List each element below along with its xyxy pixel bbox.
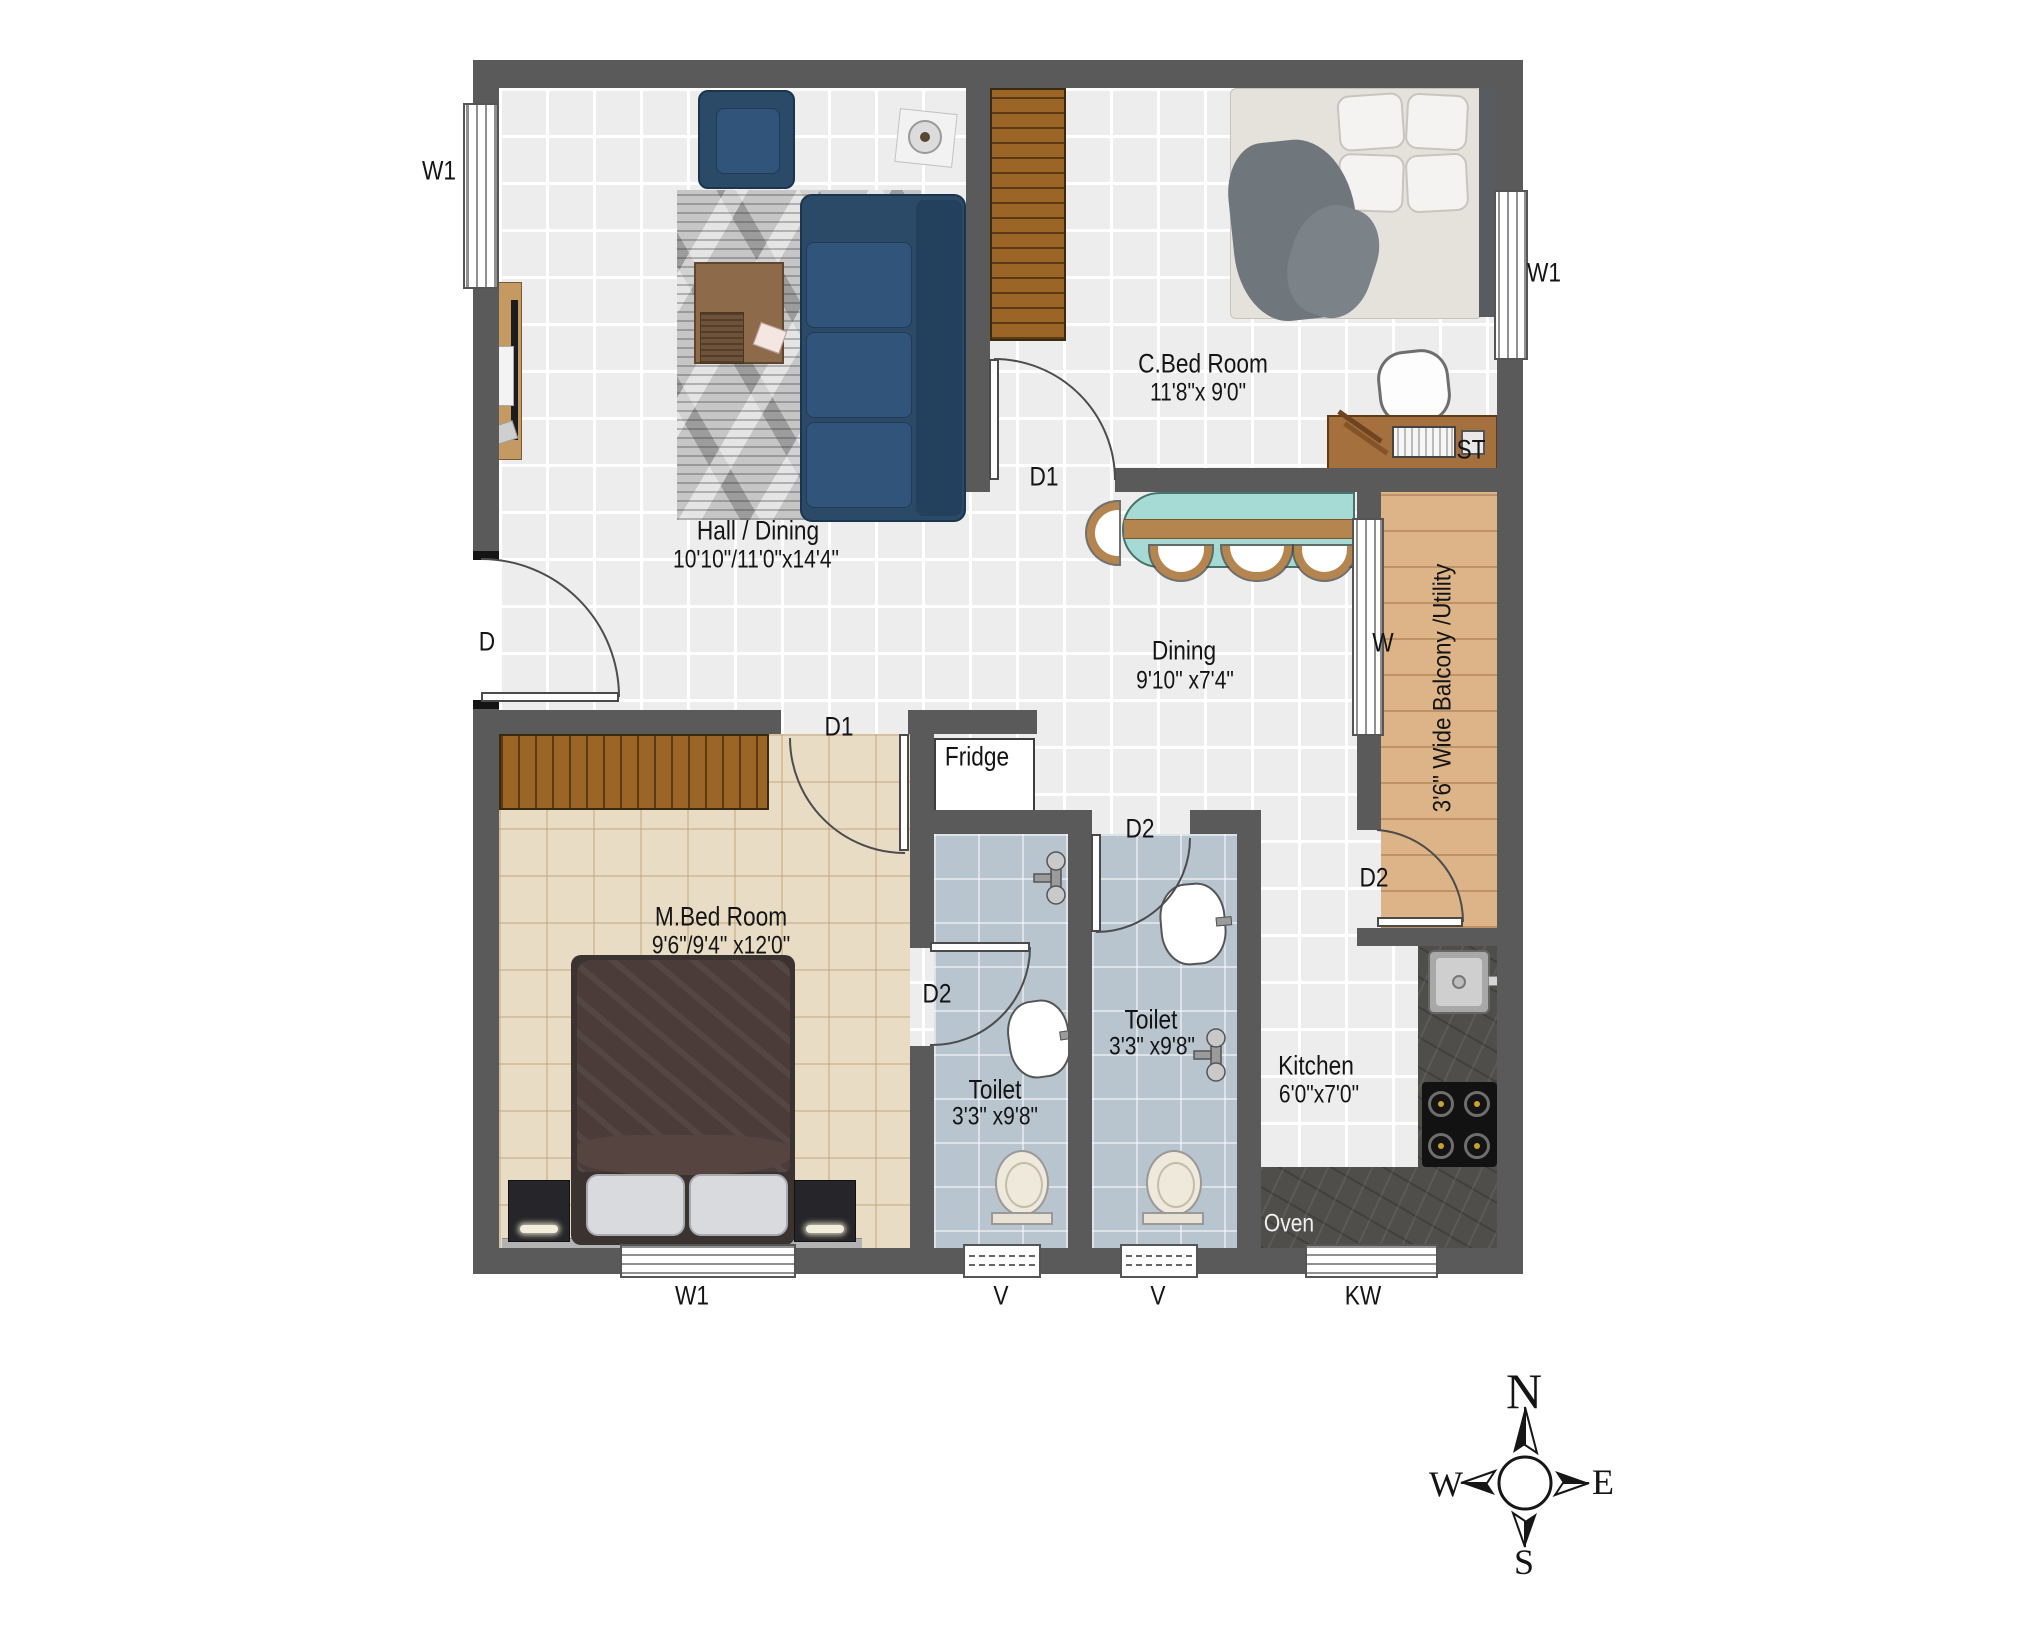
mbed-wardrobe	[499, 734, 769, 810]
window-label-kw: KW	[1345, 1283, 1382, 1310]
door-label-mbed: D1	[825, 714, 854, 741]
door-leaf-cbed	[989, 359, 999, 480]
dining-dims-label: 9'10" x7'4"	[1136, 669, 1234, 694]
window-label-vent-right: V	[1150, 1283, 1165, 1310]
door-label-cbed: D1	[1030, 464, 1059, 491]
keyboard	[1392, 426, 1456, 458]
wall-toilet-mid-top	[1068, 810, 1092, 834]
stove-burner	[1428, 1091, 1454, 1117]
kitchen-dims-label: 6'0"x7'0"	[1279, 1083, 1359, 1108]
compass-letter-e: E	[1592, 1464, 1614, 1500]
window-w1-bottom	[620, 1244, 796, 1278]
toilet-right-dims-label: 3'3" x9'8"	[1109, 1035, 1195, 1060]
coffee-table-tray	[700, 312, 744, 364]
wall-balcony-left-mid	[1357, 736, 1381, 830]
door-label-main: D	[479, 629, 495, 656]
door-leaf-main	[481, 692, 619, 702]
window-label-w1-left: W1	[422, 158, 456, 185]
toilet-tank-left	[991, 1212, 1053, 1225]
wall-toilet-left-top	[934, 810, 1068, 834]
floor-plan-canvas: Hall / Dining 10'10"/11'0"x14'4" C.Bed R…	[0, 0, 2029, 1627]
sofa-cushion	[806, 242, 912, 328]
window-kw-kitchen	[1305, 1244, 1438, 1278]
door-leaf-toilet-left	[930, 942, 1030, 952]
wall-mbed-top-left	[473, 710, 781, 734]
door-label-toilet-right: D2	[1126, 816, 1155, 843]
wall-balcony-bottom	[1357, 928, 1523, 946]
kitchen-name-label: Kitchen	[1278, 1053, 1354, 1080]
door-jamb	[473, 551, 499, 560]
door-leaf-balcony	[1377, 917, 1463, 927]
compass-rose	[1461, 1407, 1589, 1547]
pillow	[1405, 152, 1470, 213]
dining-table-runner	[1124, 519, 1353, 539]
toilet-left-dims-label: 3'3" x9'8"	[952, 1105, 1038, 1130]
mbed-name-label: M.Bed Room	[655, 904, 787, 931]
wall-balcony-left-upper	[1357, 492, 1381, 520]
door-leaf-toilet-right	[1091, 834, 1101, 932]
sofa-cushion	[806, 422, 912, 508]
oven-label: Oven	[1264, 1212, 1314, 1237]
toilet-bowl-right-rim	[1157, 1162, 1195, 1208]
cbed-name-label: C.Bed Room	[1138, 351, 1268, 378]
pillow	[689, 1174, 788, 1236]
sofa-backrest	[916, 200, 962, 516]
study-table-label: ST	[1457, 437, 1486, 464]
toilet-right-name-label: Toilet	[1125, 1007, 1178, 1034]
cbed-dims-label: 11'8"x 9'0"	[1150, 381, 1246, 406]
window-label-w1-right: W1	[1527, 260, 1561, 287]
hall-dims-label: 10'10"/11'0"x14'4"	[673, 548, 839, 573]
wall-toilet-block-left-upper	[910, 734, 934, 948]
wall-toilet-right	[1237, 810, 1261, 1248]
armchair-cushion	[716, 108, 780, 174]
wall-mbed-top-right	[908, 710, 1037, 734]
toilet-tank-right	[1142, 1212, 1204, 1225]
compass-letter-s: S	[1514, 1544, 1534, 1580]
pillow	[1336, 92, 1406, 152]
cbed-wardrobe	[990, 88, 1066, 341]
wall-toilet-mid	[1068, 834, 1092, 1248]
ceiling-lamp-bulbs	[920, 132, 930, 142]
stove-burner	[1428, 1133, 1454, 1159]
door-label-toilet-left: D2	[923, 981, 952, 1008]
nightstand-left	[508, 1180, 570, 1242]
fridge-label: Fridge	[945, 744, 1009, 771]
compass-letter-w: W	[1429, 1466, 1463, 1502]
window-w1-right	[1494, 190, 1528, 360]
door-leaf-mbed	[899, 734, 909, 851]
dining-name-label: Dining	[1152, 638, 1216, 665]
wall-cbed-bottom	[1115, 468, 1523, 492]
kitchen-sink-drain	[1452, 975, 1466, 989]
door-label-balcony: D2	[1360, 865, 1389, 892]
window-w1-left	[463, 103, 499, 289]
window-vent-left	[963, 1244, 1041, 1278]
compass-letter-n: N	[1506, 1366, 1542, 1416]
wall-top	[473, 60, 1523, 88]
nightstand-right	[794, 1180, 856, 1242]
hall-name-label: Hall / Dining	[697, 518, 819, 545]
mbed-dims-label: 9'6"/9'4" x12'0"	[652, 934, 790, 959]
pillow	[586, 1174, 685, 1236]
stove-burner	[1464, 1091, 1490, 1117]
toilet-bowl-left-rim	[1005, 1162, 1043, 1208]
window-vent-right	[1120, 1244, 1198, 1278]
window-label-w-dining: W	[1372, 630, 1393, 657]
balcony-name-label: 3'6" Wide Balcony /Utility	[1431, 564, 1456, 813]
wall-hall-cbed-divider	[966, 88, 990, 492]
pillow	[1405, 92, 1470, 151]
window-label-vent-left: V	[993, 1283, 1008, 1310]
window-label-w1-bottom: W1	[675, 1283, 709, 1310]
toilet-left-name-label: Toilet	[969, 1077, 1022, 1104]
mbed-blanket-edge	[577, 1135, 790, 1175]
stove-burner	[1464, 1133, 1490, 1159]
sofa-cushion	[806, 332, 912, 418]
wall-toilet-block-left-lower	[910, 1046, 934, 1248]
